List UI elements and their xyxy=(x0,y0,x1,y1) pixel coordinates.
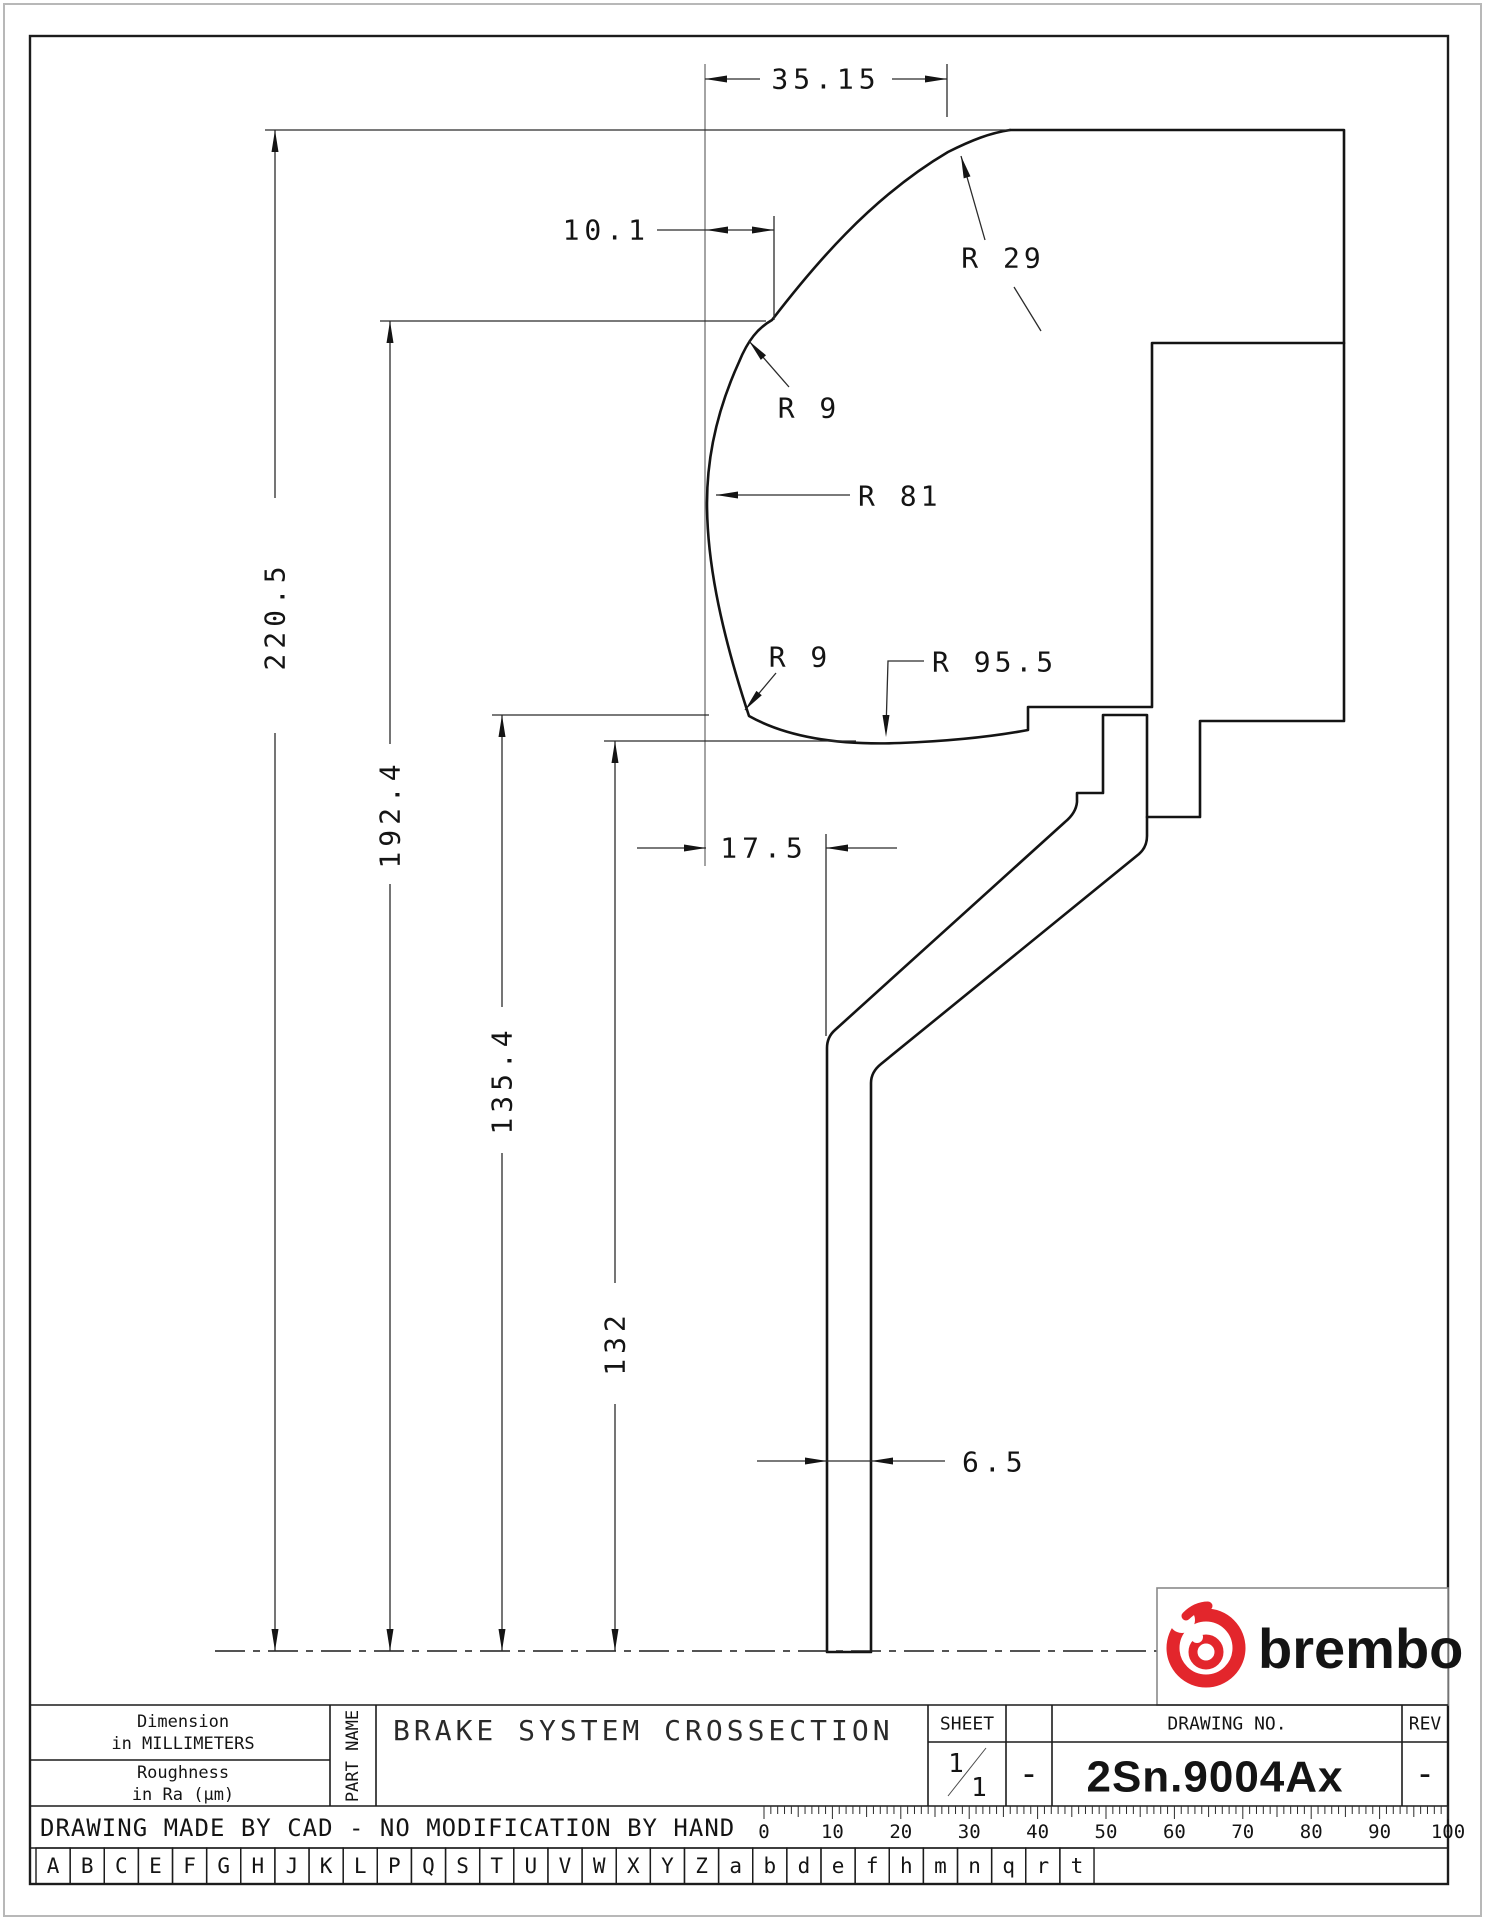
dim-notch-offset: 10.1 xyxy=(563,214,650,247)
dim-step-height: 135.4 xyxy=(486,1025,519,1134)
sheet-dash-value: - xyxy=(1019,1754,1039,1794)
reference-letter: e xyxy=(832,1854,845,1878)
reference-letter: W xyxy=(593,1854,606,1878)
reference-letter: X xyxy=(627,1854,640,1878)
sheet-denominator: 1 xyxy=(971,1773,987,1803)
brembo-logo: brembo xyxy=(1157,1588,1463,1705)
dim-top-width: 35.15 xyxy=(771,63,880,96)
reference-letter: q xyxy=(1002,1854,1015,1878)
reference-letter: L xyxy=(354,1854,367,1878)
ruler-label: 20 xyxy=(889,1821,912,1843)
rev-value: - xyxy=(1415,1754,1435,1794)
dimension-note-line2: in MILLIMETERS xyxy=(111,1734,254,1754)
rev-label: REV xyxy=(1409,1714,1442,1735)
reference-letter: V xyxy=(559,1854,572,1878)
ruler-label: 90 xyxy=(1368,1821,1391,1843)
dim-hub-offset: 17.5 xyxy=(720,832,807,865)
reference-letter: G xyxy=(217,1854,230,1878)
dimension-note-line1: Dimension xyxy=(137,1712,229,1732)
roughness-note-line1: Roughness xyxy=(137,1763,229,1783)
reference-letter: B xyxy=(81,1854,94,1878)
dim-overall-height: 220.5 xyxy=(259,561,292,670)
sheet-numerator: 1 xyxy=(948,1749,964,1779)
reference-letter: F xyxy=(183,1854,196,1878)
reference-letter: C xyxy=(115,1854,128,1878)
dim-plate-thickness: 6.5 xyxy=(962,1446,1028,1479)
reference-letter: S xyxy=(456,1854,469,1878)
ruler-label: 100 xyxy=(1431,1821,1465,1843)
reference-letter: P xyxy=(388,1854,401,1878)
reference-letter: m xyxy=(934,1854,947,1878)
reference-letter: f xyxy=(866,1854,879,1878)
reference-letter: b xyxy=(763,1854,776,1878)
reference-letter: r xyxy=(1037,1854,1050,1878)
dim-ring-bottom-height: 132 xyxy=(599,1310,632,1376)
sheet-label: SHEET xyxy=(940,1714,994,1735)
dim-radius-lower-fillet: R 9 xyxy=(769,641,832,674)
reference-letter: h xyxy=(900,1854,913,1878)
reference-letter: d xyxy=(798,1854,811,1878)
reference-letter: A xyxy=(47,1854,60,1878)
ruler-label: 50 xyxy=(1095,1821,1118,1843)
roughness-note-line2: in Ra (μm) xyxy=(132,1785,234,1805)
reference-letter: Q xyxy=(422,1854,435,1878)
logo-wordmark: brembo xyxy=(1258,1617,1463,1680)
ruler-label: 60 xyxy=(1163,1821,1186,1843)
ruler-label: 0 xyxy=(758,1821,769,1843)
ruler-label: 80 xyxy=(1300,1821,1323,1843)
dim-radius-face: R 81 xyxy=(858,480,941,513)
dim-radius-notch: R 9 xyxy=(778,392,841,425)
ruler-label: 30 xyxy=(958,1821,981,1843)
reference-letter: K xyxy=(320,1854,333,1878)
reference-letter: U xyxy=(525,1854,538,1878)
reference-letter: Y xyxy=(661,1854,674,1878)
drawing-no-label: DRAWING NO. xyxy=(1167,1714,1286,1735)
part-name-label: PART NAME xyxy=(343,1710,363,1802)
drawing-no-value: 2Sn.9004Ax xyxy=(1086,1753,1343,1802)
reference-letter: E xyxy=(149,1854,162,1878)
ruler-label: 10 xyxy=(821,1821,844,1843)
dim-radius-bottom: R 95.5 xyxy=(932,646,1057,679)
cad-note: DRAWING MADE BY CAD - NO MODIFICATION BY… xyxy=(40,1814,735,1842)
ruler-label: 70 xyxy=(1231,1821,1254,1843)
reference-letter: n xyxy=(968,1854,981,1878)
drawing-sheet: 35.15 10.1 R 29 R 9 R 81 R 9 R 95.5 17.5… xyxy=(0,0,1485,1920)
reference-letter: J xyxy=(286,1854,299,1878)
reference-letter: H xyxy=(252,1854,265,1878)
ruler-label: 40 xyxy=(1026,1821,1049,1843)
reference-letter: Z xyxy=(695,1854,708,1878)
dim-notch-height: 192.4 xyxy=(374,759,407,868)
reference-letter: T xyxy=(490,1854,503,1878)
dim-radius-top: R 29 xyxy=(961,242,1044,275)
reference-letter: t xyxy=(1071,1854,1084,1878)
reference-letter: a xyxy=(729,1854,742,1878)
part-title: BRAKE SYSTEM CROSSECTION xyxy=(393,1714,894,1747)
